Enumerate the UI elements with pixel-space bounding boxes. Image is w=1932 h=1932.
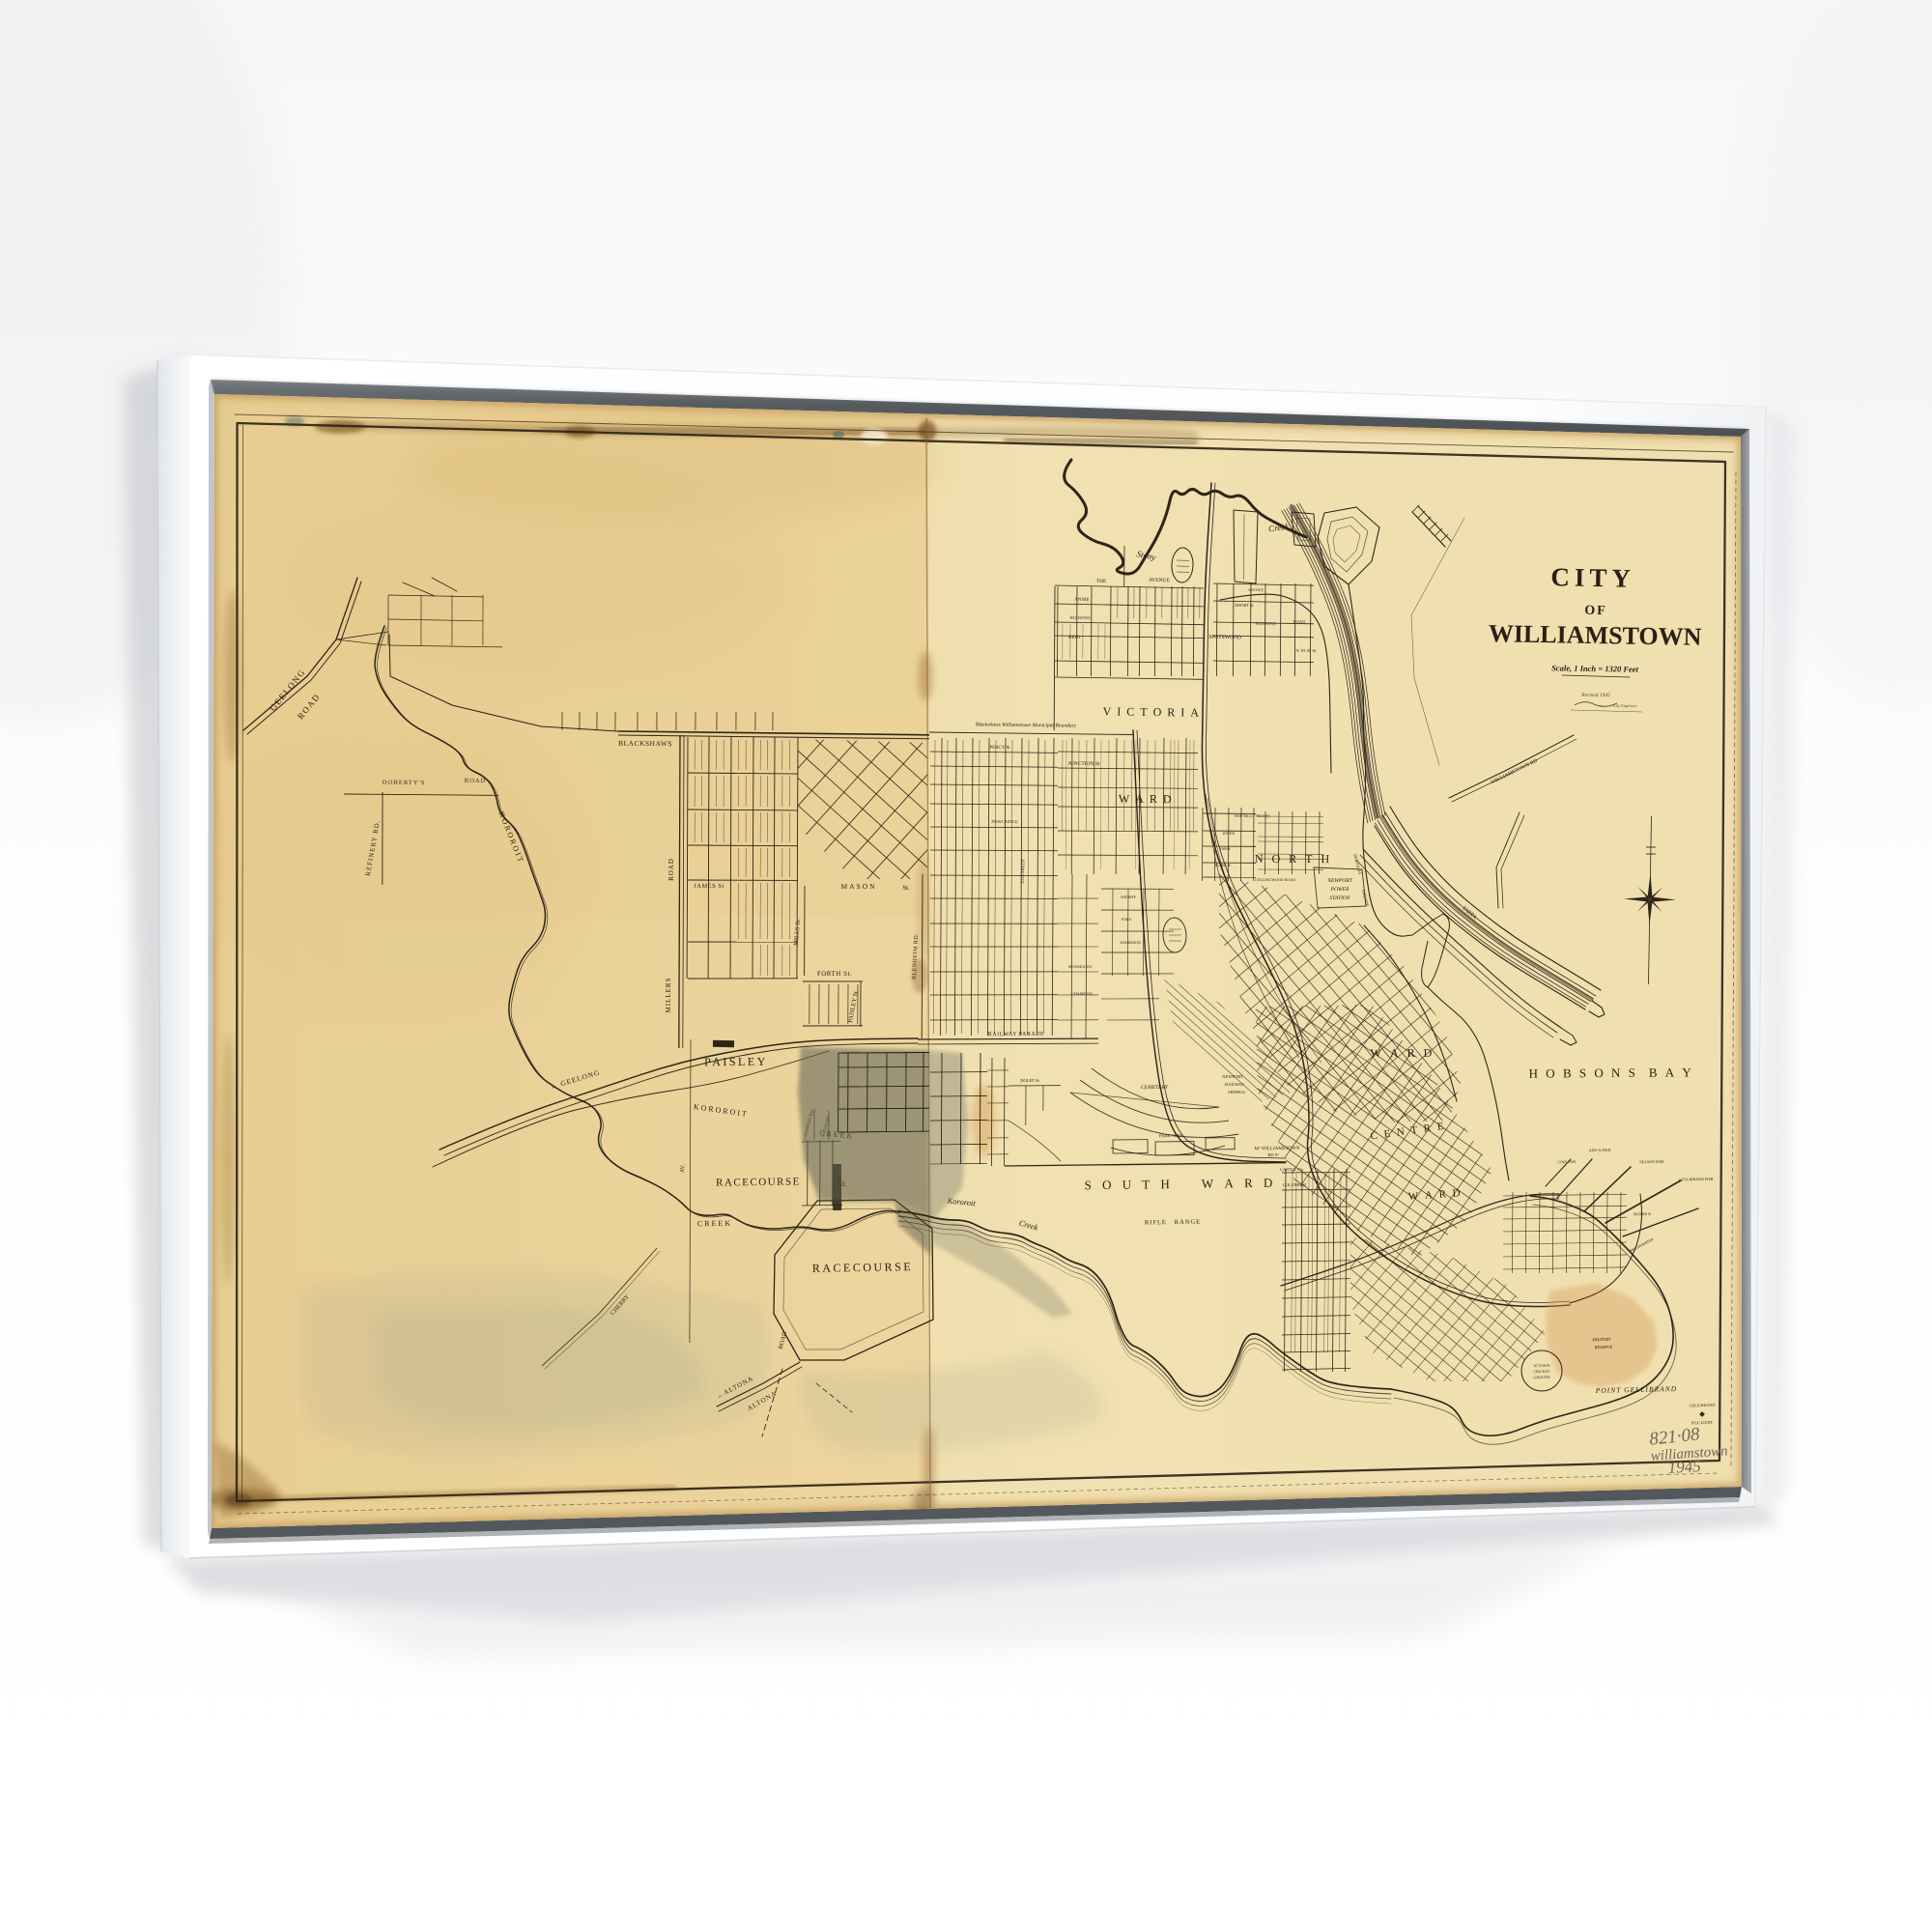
svg-text:SPOTSWOOD: SPOTSWOOD <box>1208 635 1241 641</box>
svg-text:Scale, 1 Inch = 1320 Feet: Scale, 1 Inch = 1320 Feet <box>1551 663 1639 673</box>
svg-text:CASTLE St: CASTLE St <box>1280 1167 1302 1172</box>
svg-text:AVENUE: AVENUE <box>1149 578 1171 583</box>
svg-text:V I C T O R I A: V I C T O R I A <box>1103 704 1201 719</box>
svg-text:FORD: FORD <box>1122 917 1132 922</box>
svg-text:FARM: FARM <box>1219 846 1231 851</box>
svg-text:AV.: AV. <box>680 1164 686 1173</box>
svg-text:CREEK: CREEK <box>697 1219 732 1229</box>
svg-text:MILLERS: MILLERS <box>665 978 672 1013</box>
svg-text:S O U T H W A R D: S O U T H W A R D <box>1084 1176 1276 1193</box>
svg-text:CHAMPION: CHAMPION <box>1071 991 1092 996</box>
svg-text:COLUMN St: COLUMN St <box>1283 1182 1307 1187</box>
svg-text:1945: 1945 <box>1667 1457 1701 1477</box>
svg-text:PIER RR St: PIER RR St <box>1634 1212 1652 1216</box>
svg-text:JUNCTION St: JUNCTION St <box>1068 761 1100 767</box>
svg-text:THE: THE <box>1096 579 1107 584</box>
svg-text:ELMSLIE: ELMSLIE <box>1215 863 1232 867</box>
svg-text:RIFLE RANGE: RIFLE RANGE <box>1145 1219 1201 1227</box>
svg-text:RIVER: RIVER <box>1223 831 1235 836</box>
svg-text:Revised 1945: Revised 1945 <box>1580 692 1610 698</box>
svg-text:CITY: CITY <box>1550 562 1635 593</box>
svg-text:OF: OF <box>1584 604 1607 618</box>
svg-text:GELLIBRAND: GELLIBRAND <box>1690 1403 1716 1408</box>
svg-text:W A R D: W A R D <box>1119 792 1173 806</box>
svg-text:HUDSONS: HUDSONS <box>1255 621 1276 626</box>
svg-text:NEWPORT: NEWPORT <box>1222 1074 1243 1079</box>
svg-text:POWER: POWER <box>1330 887 1350 893</box>
svg-text:DOHERTY'S: DOHERTY'S <box>383 780 426 786</box>
svg-text:SIDINGS: SIDINGS <box>1228 1090 1245 1094</box>
svg-text:ANNIE: ANNIE <box>1074 598 1090 603</box>
svg-text:N. M. R. W: N. M. R. W <box>1295 648 1317 653</box>
svg-text:AVENUE: AVENUE <box>1248 587 1264 592</box>
svg-text:ANDERSON: ANDERSON <box>1120 940 1141 945</box>
svg-text:SHERIFF: SHERIFF <box>1121 895 1137 899</box>
svg-text:ROAD: ROAD <box>1293 619 1307 624</box>
svg-text:ANN St PIER: ANN St PIER <box>1589 1148 1611 1152</box>
svg-text:SHORT St: SHORT St <box>1235 603 1254 608</box>
svg-text:CRICKET: CRICKET <box>1533 1369 1550 1374</box>
svg-text:RACECOURSE: RACECOURSE <box>716 1176 801 1188</box>
svg-text:WILLIAMSTOWN: WILLIAMSTOWN <box>1489 619 1702 651</box>
svg-text:M¹ WILLIAMSTOWN: M¹ WILLIAMSTOWN <box>1254 1146 1299 1152</box>
svg-text:City Engineer: City Engineer <box>1612 703 1636 708</box>
svg-text:PARK CRES: PARK CRES <box>1159 1133 1183 1138</box>
svg-text:RAILWAY: RAILWAY <box>1225 1082 1245 1087</box>
svg-text:CEMETERY: CEMETERY <box>1141 1085 1169 1091</box>
svg-text:ROAD: ROAD <box>668 858 675 881</box>
svg-text:RD Sⁿ: RD Sⁿ <box>1267 1152 1279 1157</box>
svg-text:NELSON PIER: NELSON PIER <box>1639 1159 1664 1164</box>
svg-text:St.: St. <box>902 884 910 892</box>
svg-text:RAILWAY PARADE: RAILWAY PARADE <box>988 1032 1044 1037</box>
svg-text:COLLINGWOOD ROAD: COLLINGWOOD ROAD <box>1255 877 1295 882</box>
svg-text:ROAD: ROAD <box>465 778 486 784</box>
svg-text:MASON: MASON <box>840 882 876 891</box>
svg-text:RESERVE: RESERVE <box>1594 1345 1613 1350</box>
svg-text:SHIP DIGGT RIGHTS: SHIP DIGGT RIGHTS <box>1234 813 1269 818</box>
svg-text:BLACKSHAWS: BLACKSHAWS <box>618 739 672 749</box>
svg-text:Blackshaws Williamstown Muni: Blackshaws Williamstown Municipal Bounda… <box>976 722 1077 728</box>
svg-text:ELIZABETH: ELIZABETH <box>1020 859 1026 884</box>
svg-text:H O B S O N S B A Y: H O B S O N S B A Y <box>1529 1065 1694 1080</box>
svg-text:RACECOURSE: RACECOURSE <box>812 1260 914 1275</box>
svg-text:JAMES St: JAMES St <box>694 883 724 890</box>
svg-text:REID: REID <box>1068 636 1080 640</box>
svg-text:PERCY St: PERCY St <box>989 746 1010 751</box>
svg-text:NEWPORT: NEWPORT <box>1326 878 1352 884</box>
svg-text:GROUND: GROUND <box>1533 1375 1549 1379</box>
svg-text:COLE PIER: COLE PIER <box>1557 1160 1577 1164</box>
svg-text:DOLET St: DOLET St <box>1020 1078 1039 1083</box>
svg-text:STATION: STATION <box>1329 895 1350 901</box>
svg-text:FORTH St.: FORTH St. <box>817 970 852 978</box>
svg-text:MILITARY: MILITARY <box>1591 1337 1611 1342</box>
svg-text:W’TOWN: W’TOWN <box>1533 1363 1549 1368</box>
svg-text:HUDSONS: HUDSONS <box>1069 615 1091 620</box>
svg-text:GELLIBRAND PIER: GELLIBRAND PIER <box>1679 1177 1714 1181</box>
svg-text:N O R T H: N O R T H <box>1255 852 1332 866</box>
svg-text:NEWCASTLE: NEWCASTLE <box>991 819 1018 824</box>
svg-text:MONMOUTH: MONMOUTH <box>1068 964 1092 969</box>
svg-text:PAISLEY: PAISLEY <box>704 1055 768 1068</box>
